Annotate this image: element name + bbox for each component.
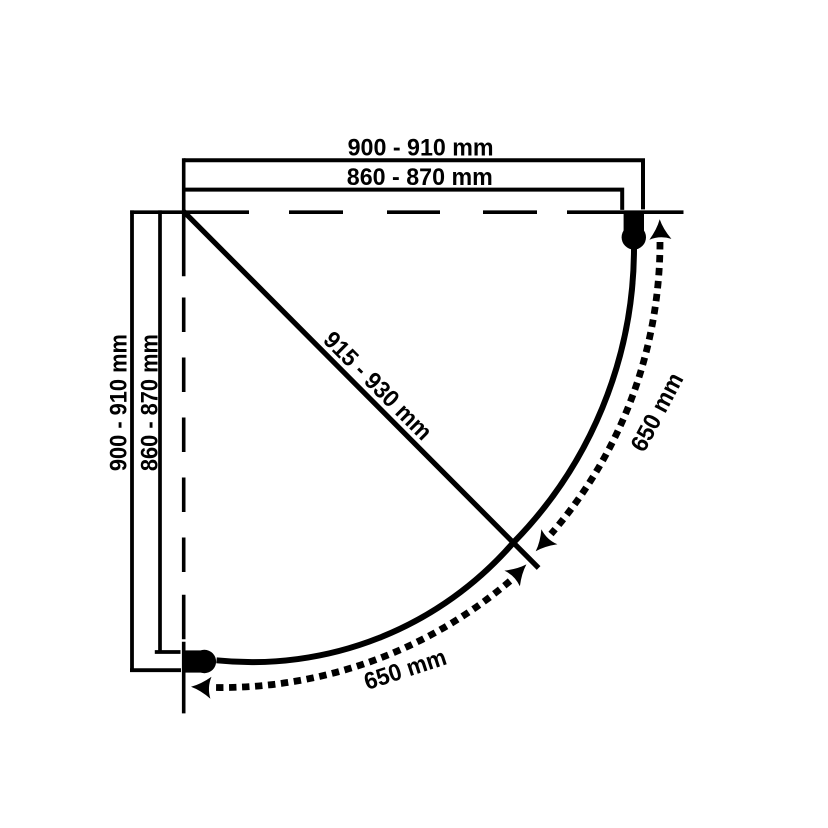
svg-text:900 - 910 mm: 900 - 910 mm [348, 135, 494, 162]
svg-text:900 - 910 mm: 900 - 910 mm [106, 334, 133, 471]
svg-text:860 - 870 mm: 860 - 870 mm [347, 164, 493, 191]
svg-text:860 - 870 mm: 860 - 870 mm [136, 334, 163, 471]
